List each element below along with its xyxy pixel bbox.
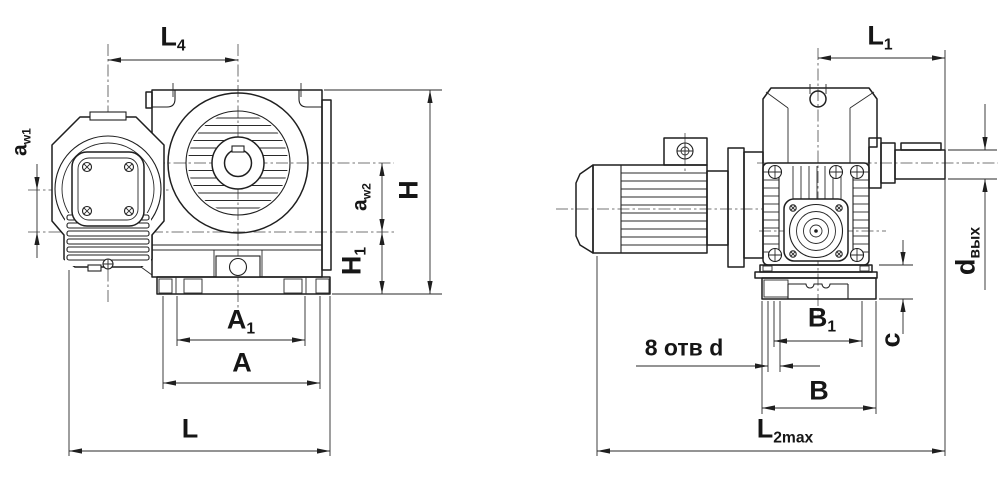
- top-lug: [90, 112, 126, 120]
- first-stage-unit-front: [52, 112, 164, 275]
- keyway-slot: [232, 146, 244, 152]
- dim-H1-main: H: [337, 256, 367, 276]
- dim-label-H1: H1: [339, 247, 366, 275]
- dim-aw2-main: a: [349, 199, 372, 211]
- dim-label-B1: B1: [808, 305, 836, 332]
- dim-A1-sub: 1: [246, 320, 255, 337]
- side-view: [556, 48, 998, 456]
- output-shaft: [895, 150, 945, 179]
- gearbox-housing-side: [755, 84, 877, 299]
- dim-label-L1: L1: [867, 23, 892, 50]
- dim-label-L4: L4: [160, 24, 185, 51]
- dim-label-d-vyh: dвых: [953, 227, 980, 275]
- dim-L2max-main: L: [757, 414, 774, 444]
- dim-L4-main: L: [160, 22, 177, 52]
- dim-aw2-sub: w2: [359, 183, 373, 199]
- dim-L1-sub: 1: [884, 36, 893, 53]
- base-foot-front: [157, 277, 330, 294]
- dim-H1-sub: 1: [352, 247, 369, 256]
- dim-d-vyh-main: d: [951, 259, 981, 276]
- holes-note-label: 8 отв d: [645, 337, 724, 360]
- dim-B1-sub: 1: [827, 318, 836, 335]
- dim-H-main: H: [394, 180, 424, 200]
- front-view: [28, 44, 442, 456]
- dim-B-main: B: [809, 376, 829, 406]
- base-foot-side: [762, 278, 876, 299]
- dim-label-aw2: aw2: [350, 183, 371, 211]
- adapter-flange: [728, 148, 744, 267]
- gearbox-housing-front: [146, 83, 331, 294]
- dim-B1-main: B: [808, 303, 828, 333]
- dim-label-B: B: [809, 378, 829, 405]
- motor-flange-front: [72, 152, 144, 226]
- dim-label-aw1: aw1: [10, 128, 31, 156]
- dim-label-c: c: [878, 332, 905, 347]
- dim-A1-main: A: [227, 305, 247, 335]
- technical-drawing-canvas: [0, 0, 1008, 482]
- dim-A-main: A: [232, 348, 252, 378]
- dim-L-main: L: [182, 414, 199, 444]
- dim-label-A: A: [232, 350, 252, 377]
- dim-label-H: H: [396, 180, 423, 200]
- dim-label-L2max: L2max: [757, 416, 814, 443]
- dim-L2max-sub: 2max: [773, 429, 813, 446]
- dim-c-main: c: [876, 332, 906, 347]
- output-shaft-hole: [225, 150, 252, 177]
- shaft-key: [901, 143, 941, 150]
- technical-drawing-page: L4 aw1 aw2 H H1 A1 A L L1 dвых c B1 B L2…: [0, 0, 1008, 482]
- dim-d-vyh-sub: вых: [966, 227, 983, 259]
- holes-note-text: 8 отв d: [645, 335, 724, 361]
- side-fins-left: [763, 172, 779, 252]
- electric-motor-side: [576, 138, 763, 267]
- dim-L4-sub: 4: [177, 37, 186, 54]
- dim-label-A1: A1: [227, 307, 255, 334]
- dim-L1-main: L: [867, 21, 884, 51]
- dim-label-L: L: [182, 416, 199, 443]
- side-fins-right: [853, 172, 869, 252]
- motor-adapter: [707, 171, 728, 245]
- dim-aw1-sub: w1: [19, 128, 33, 144]
- dim-aw1-main: a: [9, 144, 32, 156]
